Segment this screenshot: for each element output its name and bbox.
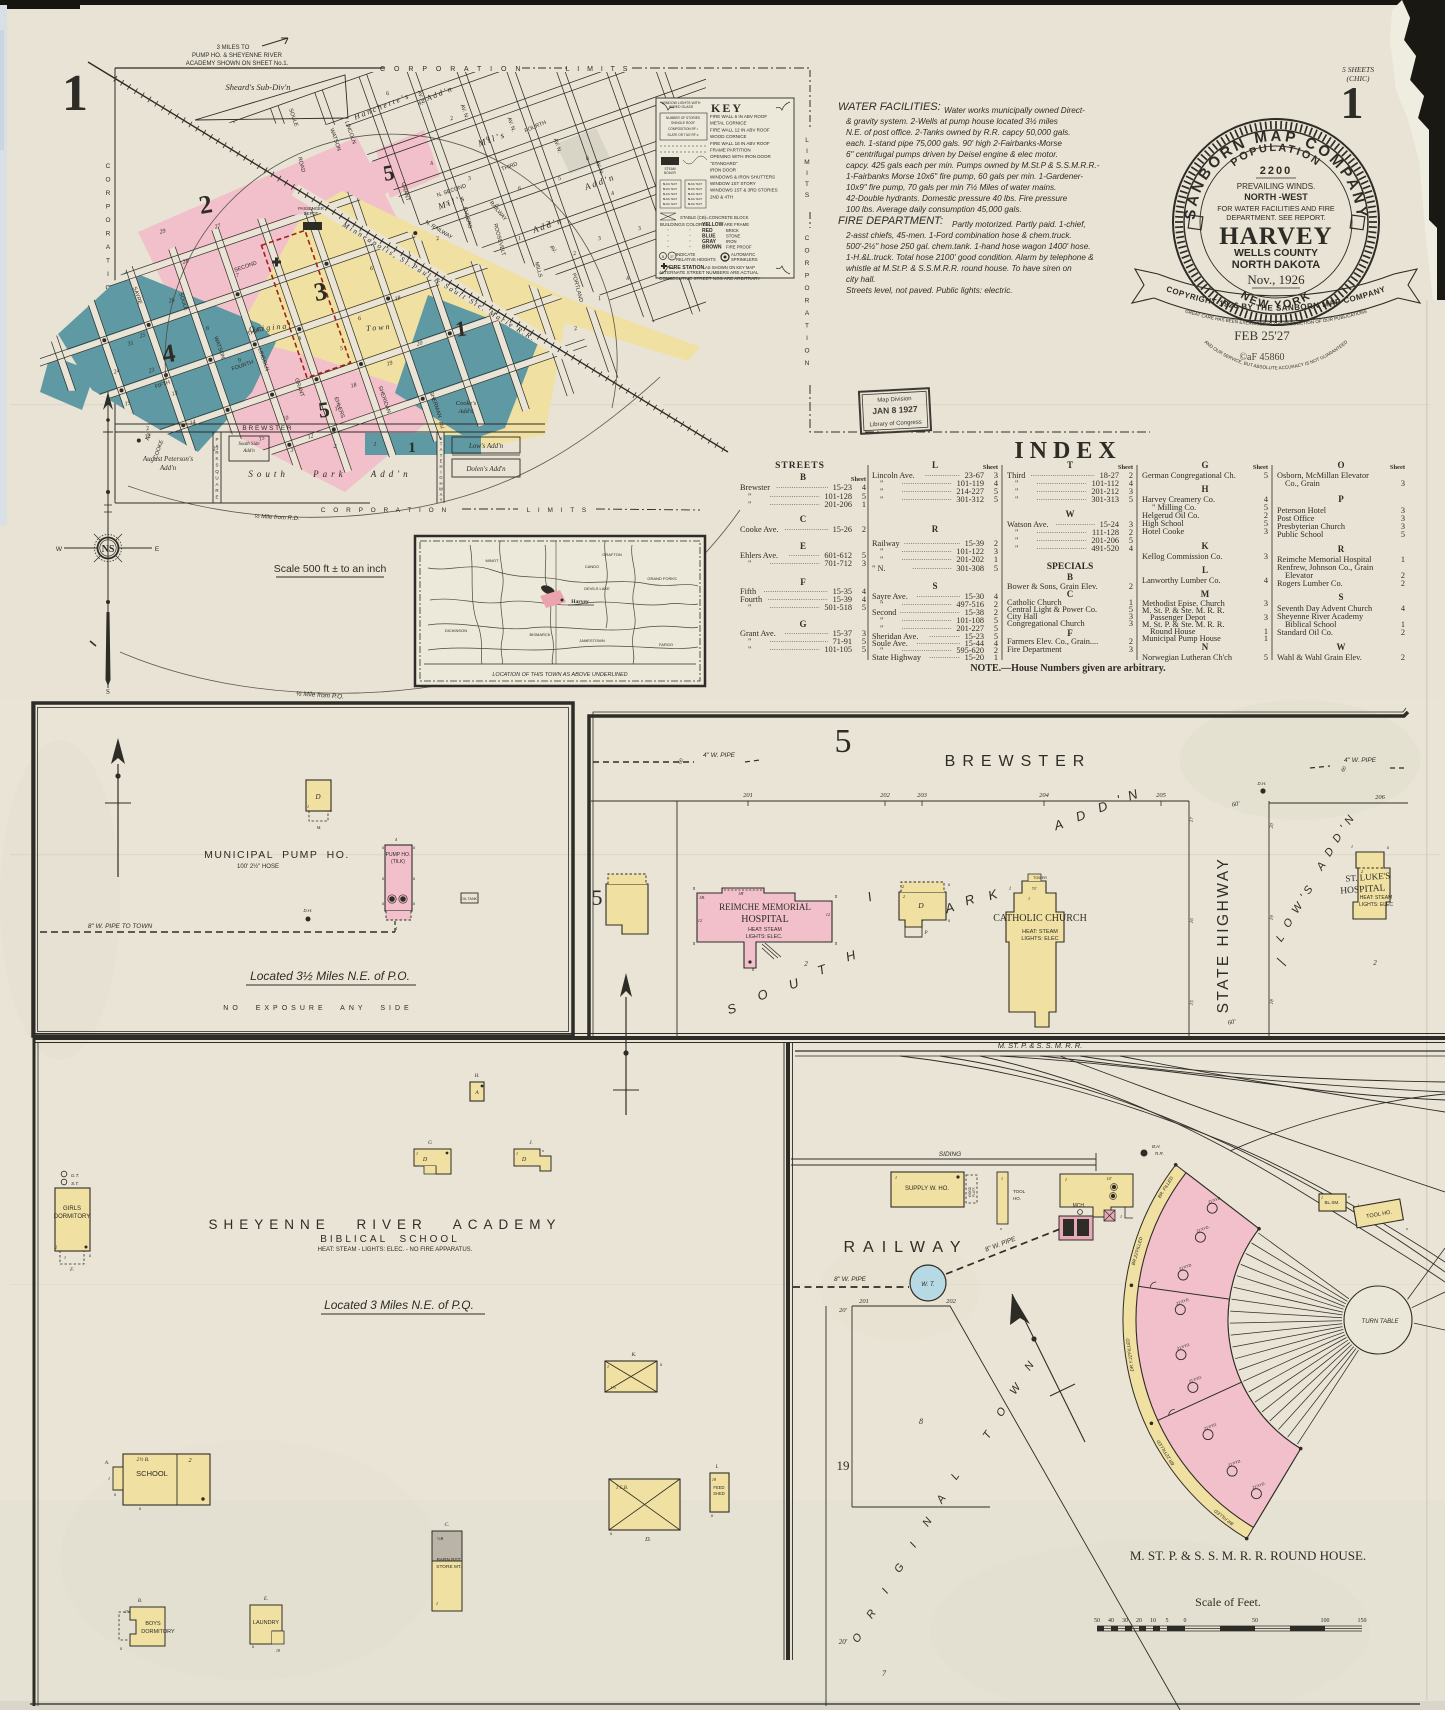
svg-text:C.: C. — [444, 1522, 449, 1528]
svg-text:4" W. PIPE: 4" W. PIPE — [703, 752, 736, 759]
svg-text:METAL CORNICE: METAL CORNICE — [710, 121, 747, 126]
svg-text:1 C.B.: 1 C.B. — [616, 1486, 628, 1491]
svg-text:©aF 45860: ©aF 45860 — [1239, 352, 1284, 363]
svg-text:T: T — [440, 453, 443, 458]
svg-text:N.E. of post office. 2-Tanks o: N.E. of post office. 2-Tanks owned by R.… — [846, 128, 1071, 137]
svg-text:LIGHTS: ELEC: LIGHTS: ELEC — [1021, 936, 1058, 942]
svg-text:STORE MT.: STORE MT. — [436, 1564, 462, 1570]
svg-text:BLDG TEXT: BLDG TEXT — [688, 197, 703, 201]
svg-text:T: T — [440, 442, 443, 447]
svg-text:F: F — [800, 577, 806, 587]
svg-text:E: E — [155, 546, 160, 553]
svg-text:1: 1 — [994, 555, 998, 564]
svg-text:Partly motorized. Partly paid.: Partly motorized. Partly paid. 1-chief, — [952, 220, 1086, 229]
svg-text:Cooke's: Cooke's — [456, 400, 477, 407]
svg-text:1: 1 — [1357, 1203, 1359, 1208]
svg-text:5: 5 — [592, 885, 603, 910]
svg-text:1: 1 — [1321, 1195, 1323, 1200]
svg-text:WOOD CORNICE: WOOD CORNICE — [710, 134, 747, 139]
svg-text:": " — [1015, 495, 1018, 504]
svg-text:Soule Ave.: Soule Ave. — [872, 639, 908, 648]
svg-text:I: I — [806, 148, 808, 155]
svg-text:C: C — [1067, 589, 1074, 599]
svg-text:E: E — [440, 458, 443, 463]
svg-text:201-206: 201-206 — [824, 500, 852, 509]
svg-text:DICKINSON: DICKINSON — [445, 628, 467, 633]
svg-text:501-518: 501-518 — [824, 603, 852, 612]
svg-text:Norwegian Lutheran Ch'ch: Norwegian Lutheran Ch'ch — [1142, 653, 1233, 662]
svg-text:G: G — [439, 475, 442, 480]
svg-text:206: 206 — [1375, 794, 1386, 801]
svg-text:100' 2½" HOSE: 100' 2½" HOSE — [237, 863, 279, 870]
svg-text:Second: Second — [872, 608, 897, 617]
svg-text:PUMP HO. & SHEYENNE RIVER: PUMP HO. & SHEYENNE RIVER — [192, 53, 283, 59]
svg-text:FOR WATER FACILITIES AND FIRE: FOR WATER FACILITIES AND FIRE — [1217, 204, 1335, 213]
svg-text:Hotel Cooke: Hotel Cooke — [1142, 527, 1184, 536]
svg-text:S.T.: S.T. — [71, 1181, 79, 1186]
svg-text:L: L — [932, 460, 938, 470]
svg-text:1: 1 — [1341, 77, 1364, 128]
svg-text:SCHOOL: SCHOOL — [136, 1469, 168, 1478]
svg-text:DORMITORY: DORMITORY — [141, 1629, 175, 1635]
svg-text:1: 1 — [1401, 555, 1405, 564]
svg-text:Bower & Sons, Grain Elev.: Bower & Sons, Grain Elev. — [1007, 582, 1098, 591]
svg-text:x: x — [1406, 1226, 1408, 1231]
svg-text:x: x — [330, 808, 332, 813]
svg-text:BREWSTER: BREWSTER — [945, 753, 1092, 770]
svg-text:P: P — [106, 204, 110, 211]
svg-text:Add'n: Add'n — [159, 464, 177, 472]
svg-text:201: 201 — [859, 1298, 869, 1305]
svg-text:E: E — [215, 495, 218, 500]
svg-text:(TILK): (TILK) — [391, 859, 405, 865]
svg-text:2200: 2200 — [1260, 165, 1292, 177]
svg-text:HOSPITAL: HOSPITAL — [741, 914, 789, 925]
svg-text:500'-2½" hose 250 gal. chem.ta: 500'-2½" hose 250 gal. chem.tank. 1-hand… — [846, 242, 1091, 251]
svg-text:Dolen's Add'n: Dolen's Add'n — [465, 465, 506, 473]
svg-text:GRAND FORKS: GRAND FORKS — [647, 576, 677, 581]
svg-text:L: L — [805, 137, 809, 144]
svg-text:1: 1 — [374, 442, 377, 448]
svg-text:0: 0 — [1184, 1618, 1187, 1624]
svg-text:Watson Ave.: Watson Ave. — [1007, 520, 1049, 529]
svg-text:Wahl & Wahl Grain Elev.: Wahl & Wahl Grain Elev. — [1277, 653, 1362, 662]
svg-text:WINDOW 1ST STORY: WINDOW 1ST STORY — [710, 181, 756, 186]
svg-text:O: O — [804, 348, 809, 355]
svg-text:2-asst chiefs, 45-men. 1-Ford: 2-asst chiefs, 45-men. 1-Ford combinatio… — [845, 231, 1072, 240]
svg-text:Add'n: Add'n — [242, 449, 255, 454]
svg-text:Ehlers Ave.: Ehlers Ave. — [740, 551, 778, 560]
svg-text:1: 1 — [1001, 1176, 1003, 1181]
svg-text:2: 2 — [1401, 653, 1405, 662]
svg-text:5: 5 — [994, 495, 998, 504]
svg-text:2½ B.: 2½ B. — [137, 1456, 150, 1463]
svg-text:1: 1 — [607, 1364, 609, 1369]
svg-text:city hall.: city hall. — [846, 275, 876, 284]
svg-text:1: 1 — [862, 500, 866, 509]
svg-text:S: S — [106, 688, 110, 696]
svg-text:NS: NS — [102, 544, 115, 555]
svg-text:JAMESTOWN: JAMESTOWN — [579, 638, 605, 643]
svg-text:"STANDARD": "STANDARD" — [710, 161, 738, 166]
svg-text:1B': 1B' — [738, 891, 745, 896]
svg-text:1: 1 — [307, 804, 309, 809]
svg-text:8" W. PIPE TO TOWN: 8" W. PIPE TO TOWN — [88, 923, 153, 930]
svg-text:201-202: 201-202 — [956, 555, 984, 564]
svg-text:R: R — [805, 260, 810, 267]
svg-text:H.: H. — [474, 1074, 480, 1079]
svg-text:50: 50 — [1094, 1618, 1100, 1624]
svg-text:NUMBER OF STORIES: NUMBER OF STORIES — [666, 116, 700, 120]
svg-text:SHED: SHED — [713, 1491, 725, 1496]
svg-text:IRON: IRON — [726, 239, 736, 244]
svg-text:MINOT: MINOT — [486, 558, 499, 563]
svg-text:R: R — [106, 190, 111, 197]
svg-text:A: A — [215, 443, 218, 448]
svg-text:BLDG TEXT: BLDG TEXT — [663, 202, 678, 206]
svg-text:O: O — [804, 285, 809, 292]
svg-text:E.: E. — [263, 1597, 268, 1602]
svg-text:W. T.: W. T. — [921, 1282, 935, 1288]
svg-text:F.: F. — [69, 1268, 74, 1273]
svg-text:ALTERNATE STREET NUMBERS ARE A: ALTERNATE STREET NUMBERS ARE ACTUAL — [659, 270, 759, 275]
svg-text:E: E — [800, 541, 806, 551]
svg-text:x: x — [1348, 1194, 1350, 1199]
svg-text:M.: M. — [316, 825, 322, 830]
svg-text:2ND & 4TH: 2ND & 4TH — [710, 194, 733, 199]
svg-text:LOCATION OF THIS TOWN AS ABOVE: LOCATION OF THIS TOWN AS ABOVE UNDERLINE… — [492, 672, 627, 678]
svg-text:PLATF.: PLATF. — [972, 1187, 976, 1197]
svg-text:15-26: 15-26 — [833, 525, 852, 534]
svg-text:I: I — [806, 335, 808, 342]
svg-text:HEAT: STEAM - LIGHTS: ELEC. -: HEAT: STEAM - LIGHTS: ELEC. - NO FIRE AP… — [318, 1247, 473, 1253]
svg-text:2: 2 — [862, 525, 866, 534]
svg-text:R.R.: R.R. — [1155, 1151, 1164, 1156]
svg-text:1: 1 — [1009, 887, 1012, 892]
svg-text:NO EXPOSURE ANY SIDE: NO EXPOSURE ANY SIDE — [223, 1005, 412, 1012]
svg-text:J.: J. — [529, 1141, 532, 1146]
svg-text:H: H — [439, 464, 442, 469]
svg-text:Sheard's Sub-Div'n: Sheard's Sub-Div'n — [226, 82, 291, 92]
svg-text:5: 5 — [994, 564, 998, 573]
svg-text:P: P — [805, 273, 809, 280]
svg-text:O: O — [105, 177, 110, 184]
svg-text:K.: K. — [630, 1352, 636, 1358]
svg-text:3: 3 — [862, 559, 866, 568]
svg-text:": " — [748, 603, 751, 612]
svg-text:20': 20' — [839, 1638, 848, 1646]
svg-text:202: 202 — [880, 792, 891, 799]
svg-text:491-520: 491-520 — [1091, 544, 1119, 553]
svg-text:C: C — [805, 235, 810, 242]
svg-text:" N.: " N. — [872, 564, 886, 573]
svg-text:BIBLICAL SCHOOL: BIBLICAL SCHOOL — [320, 1234, 460, 1245]
svg-text:D: D — [314, 793, 320, 801]
svg-text:M. ST. P. & S. S. M. R. R. R: M. ST. P. & S. S. M. R. R. ROUND HOUSE. — [1130, 1548, 1366, 1563]
svg-text:2: 2 — [1373, 959, 1377, 967]
svg-text:3: 3 — [1129, 645, 1133, 654]
svg-text:BLDG TEXT: BLDG TEXT — [663, 192, 678, 196]
svg-text:T: T — [805, 323, 809, 330]
svg-text:15-23: 15-23 — [833, 483, 852, 492]
svg-text:20': 20' — [839, 1307, 848, 1314]
svg-text:": " — [880, 495, 883, 504]
svg-text:5 SHEETS: 5 SHEETS — [1342, 65, 1374, 74]
svg-text:x: x — [542, 1148, 544, 1153]
svg-text:1: 1 — [108, 1476, 110, 1481]
svg-text:HEAT: STEAM: HEAT: STEAM — [748, 927, 782, 933]
svg-text:BLDG TEXT: BLDG TEXT — [663, 187, 678, 191]
svg-text:204: 204 — [1039, 792, 1050, 799]
svg-text:205: 205 — [1156, 792, 1167, 799]
svg-text:A: A — [215, 482, 218, 487]
svg-text:BLDG TEXT: BLDG TEXT — [688, 202, 703, 206]
svg-text:Public School: Public School — [1277, 530, 1324, 539]
svg-text:CONSECUTIVE STREET NOS ARE ARB: CONSECUTIVE STREET NOS ARE ARBITRARY — [659, 276, 760, 281]
svg-text:G: G — [1201, 460, 1208, 470]
svg-text:FARGO: FARGO — [659, 642, 673, 647]
svg-text:FEB 25'27: FEB 25'27 — [1234, 328, 1290, 343]
svg-text:D.: D. — [644, 1537, 651, 1543]
svg-text:B.: B. — [138, 1599, 142, 1604]
svg-text:HO.: HO. — [1013, 1196, 1021, 1201]
svg-text:H: H — [439, 481, 442, 486]
svg-text:": " — [880, 555, 883, 564]
svg-text:Streets level, not paved. Publ: Streets level, not paved. Public lights:… — [846, 286, 1013, 295]
svg-text:5: 5 — [1166, 1618, 1169, 1624]
svg-text:P: P — [215, 437, 218, 442]
svg-text:": " — [748, 559, 751, 568]
svg-text:3: 3 — [1264, 613, 1268, 622]
svg-text:BLDG TEXT: BLDG TEXT — [688, 182, 703, 186]
svg-text:Kellog Commission Co.: Kellog Commission Co. — [1142, 552, 1222, 561]
svg-text:LIGHTS: ELEC.: LIGHTS: ELEC. — [746, 934, 783, 940]
svg-text:Cooke Ave.: Cooke Ave. — [740, 525, 779, 534]
svg-text:R: R — [932, 524, 939, 534]
svg-text:Sheet: Sheet — [1253, 464, 1269, 471]
svg-text:Rogers Lumber Co.: Rogers Lumber Co. — [1277, 579, 1343, 588]
svg-text:Sheet: Sheet — [851, 476, 867, 483]
svg-text:B: B — [1067, 572, 1073, 582]
svg-text:T: T — [805, 181, 809, 188]
svg-text:Add'n: Add'n — [457, 408, 473, 415]
svg-text:CATHOLIC CHURCH: CATHOLIC CHURCH — [993, 913, 1087, 924]
svg-text:G: G — [799, 619, 806, 629]
svg-text:DEPARTMENT. SEE REPORT.: DEPARTMENT. SEE REPORT. — [1226, 213, 1325, 222]
svg-text:Sayre Ave.: Sayre Ave. — [872, 592, 908, 601]
svg-text:HEAT: STEAM: HEAT: STEAM — [1022, 929, 1058, 935]
svg-text:101-105: 101-105 — [824, 645, 852, 654]
svg-text:5: 5 — [1264, 471, 1268, 480]
svg-text:CANDO: CANDO — [585, 564, 599, 569]
svg-text:PUMP HO.: PUMP HO. — [386, 852, 411, 858]
svg-text:STATE HIGHWAY: STATE HIGHWAY — [1215, 857, 1232, 1014]
svg-text:SIDING: SIDING — [939, 1151, 961, 1158]
svg-text:BLDG TEXT: BLDG TEXT — [663, 182, 678, 186]
svg-text:D: D — [422, 1157, 428, 1163]
svg-text:1: 1 — [436, 1601, 438, 1606]
svg-text:1-Fairbanks Morse 10x6" fire p: 1-Fairbanks Morse 10x6" fire pump, 60 ga… — [846, 172, 1083, 181]
svg-text:MCH.: MCH. — [1073, 1203, 1086, 1209]
svg-text:ARE FRAME: ARE FRAME — [724, 222, 749, 227]
svg-text:BOYS: BOYS — [145, 1621, 161, 1627]
svg-text:1: 1 — [994, 653, 998, 662]
svg-text:Fourth: Fourth — [740, 595, 763, 604]
svg-text:SUPPLY W. HO.: SUPPLY W. HO. — [905, 1186, 949, 1192]
svg-text:D: D — [521, 1157, 527, 1163]
svg-text:D.H.: D.H. — [1258, 781, 1267, 786]
svg-text:15-20: 15-20 — [965, 653, 984, 662]
svg-text:WATER FACILITIES:: WATER FACILITIES: — [838, 101, 941, 113]
svg-text:3: 3 — [1401, 479, 1405, 488]
svg-text:GIRLS: GIRLS — [63, 1206, 81, 1212]
svg-text:5: 5 — [1401, 530, 1405, 539]
svg-text:3: 3 — [290, 448, 294, 454]
svg-text:I: I — [107, 271, 109, 278]
svg-text:150: 150 — [1358, 1618, 1367, 1624]
svg-text:5: 5 — [862, 645, 866, 654]
svg-text:K: K — [1201, 541, 1208, 551]
svg-text:FIRE WALL 12 IN ABV ROOF: FIRE WALL 12 IN ABV ROOF — [710, 127, 770, 132]
svg-text:S: S — [932, 581, 937, 591]
svg-text:202: 202 — [946, 1298, 957, 1305]
svg-text:& gravity system. 2-Wells at p: & gravity system. 2-Wells at pump house … — [846, 117, 1058, 126]
svg-text:REIMCHE MEMORIAL: REIMCHE MEMORIAL — [719, 902, 811, 912]
svg-text:2: 2 — [1401, 579, 1405, 588]
svg-text:DEVILS LAKE: DEVILS LAKE — [584, 586, 610, 591]
svg-text:DORMITORY: DORMITORY — [54, 1214, 90, 1220]
svg-text:R: R — [106, 231, 111, 238]
svg-text:L: L — [715, 1465, 719, 1470]
svg-text:2: 2 — [1401, 628, 1405, 637]
svg-text:B R E W S T E R: B R E W S T E R — [242, 425, 292, 432]
svg-text:SPECIALS: SPECIALS — [1047, 562, 1093, 572]
svg-text:Y: Y — [440, 498, 443, 503]
svg-text:O: O — [804, 248, 809, 255]
svg-text:Grant Ave.: Grant Ave. — [740, 629, 776, 638]
svg-text:NORTH DAKOTA: NORTH DAKOTA — [1232, 259, 1320, 271]
svg-text:W: W — [1337, 642, 1346, 652]
svg-text:BROWN: BROWN — [702, 245, 722, 251]
svg-text:STABLE (CB)=CONCRETE BLOCK: STABLE (CB)=CONCRETE BLOCK — [680, 215, 749, 220]
svg-text:WIRED GLASS: WIRED GLASS — [669, 105, 694, 109]
svg-text:Congregational Church: Congregational Church — [1007, 619, 1086, 628]
svg-text:South Side: South Side — [238, 442, 260, 447]
svg-text:OPENING WITH IRON DOOR: OPENING WITH IRON DOOR — [710, 154, 772, 159]
svg-text:A.: A. — [104, 1461, 109, 1466]
svg-text:1: 1 — [408, 440, 416, 456]
svg-text:1: 1 — [64, 1255, 66, 1260]
svg-text:": " — [1015, 544, 1018, 553]
svg-text:50: 50 — [1252, 1618, 1258, 1624]
svg-text:Railway: Railway — [872, 539, 901, 548]
svg-text:Brewster: Brewster — [740, 483, 770, 492]
svg-text:A: A — [440, 492, 443, 497]
svg-text:U: U — [215, 475, 218, 480]
svg-text:301-308: 301-308 — [956, 564, 984, 573]
svg-text:SHINGLE ROOF: SHINGLE ROOF — [671, 121, 695, 125]
svg-text:FIRE DEPARTMENT:: FIRE DEPARTMENT: — [838, 215, 943, 227]
svg-text:W: W — [56, 546, 63, 553]
svg-text:BARN BST.: BARN BST. — [437, 1557, 462, 1563]
svg-text:PREVAILING WINDS.: PREVAILING WINDS. — [1237, 182, 1316, 191]
svg-text:301-312: 301-312 — [956, 495, 984, 504]
svg-text:BRICK: BRICK — [726, 228, 739, 233]
svg-text:": " — [748, 645, 751, 654]
svg-text:Sheet: Sheet — [1118, 464, 1134, 471]
svg-text:W: W — [1066, 509, 1075, 519]
svg-text:Scale of Feet.: Scale of Feet. — [1195, 1595, 1261, 1609]
svg-text:2: 2 — [1129, 582, 1133, 591]
svg-text:Sheet: Sheet — [983, 464, 999, 471]
svg-text:ACADEMY SHOWN ON SHEET No.1.: ACADEMY SHOWN ON SHEET No.1. — [186, 61, 289, 67]
svg-text:Lanworthy Lumber Co.: Lanworthy Lumber Co. — [1142, 576, 1221, 585]
svg-text:WINDOWS 1ST & 3RD STORIES: WINDOWS 1ST & 3RD STORIES — [710, 188, 778, 193]
svg-text:3: 3 — [1129, 619, 1133, 628]
svg-text:M: M — [1201, 589, 1210, 599]
svg-text:10: 10 — [1150, 1618, 1156, 1624]
svg-text:I: I — [806, 170, 808, 177]
svg-text:BOILER: BOILER — [664, 171, 676, 175]
svg-text:LAUNDRY: LAUNDRY — [253, 1620, 280, 1626]
svg-text:70': 70' — [1032, 886, 1037, 891]
svg-text:Low's Add'n: Low's Add'n — [468, 442, 504, 450]
svg-text:K: K — [215, 456, 218, 461]
svg-text:SPRINKLERS: SPRINKLERS — [731, 257, 758, 262]
svg-text:G.T.: G.T. — [71, 1173, 80, 1178]
svg-text:1: 1 — [1065, 1177, 1067, 1182]
svg-text:P: P — [1338, 494, 1344, 504]
svg-text:C O R P O R A T I O N: C O R P O R A T I O N — [380, 66, 524, 73]
svg-text:BISMARCK: BISMARCK — [530, 632, 551, 637]
svg-text:H: H — [1201, 484, 1208, 494]
svg-text:L: L — [1202, 565, 1208, 575]
svg-text:5: 5 — [1264, 653, 1268, 662]
svg-text:Located 3½ Miles N.E. of P.O.: Located 3½ Miles N.E. of P.O. — [250, 969, 410, 983]
svg-text:301-313: 301-313 — [1091, 495, 1119, 504]
svg-text:August Peterson's: August Peterson's — [142, 455, 194, 463]
svg-text:GRAFTON: GRAFTON — [602, 552, 622, 557]
svg-text:O: O — [1337, 460, 1344, 470]
svg-text:S: S — [805, 192, 810, 199]
svg-text:BL.SM.: BL.SM. — [1324, 1200, 1339, 1205]
svg-text:100: 100 — [1321, 1618, 1330, 1624]
svg-text:": " — [748, 500, 751, 509]
svg-text:NOTE.—House Numbers given are: NOTE.—House Numbers given are arbitrary. — [970, 663, 1166, 674]
svg-text:KEY: KEY — [711, 101, 743, 115]
svg-text:Fire Department: Fire Department — [1007, 645, 1062, 654]
svg-text:WELLS COUNTY: WELLS COUNTY — [1234, 247, 1318, 259]
svg-text:5: 5 — [862, 603, 866, 612]
svg-text:6" centrifugal pumps driven by: 6" centrifugal pumps driven by Deisel en… — [846, 150, 1058, 159]
svg-text:SLATE OR TILE RF o: SLATE OR TILE RF o — [668, 133, 699, 137]
svg-text:HARVEY: HARVEY — [1219, 223, 1332, 250]
svg-text:8" W. PIPE: 8" W. PIPE — [834, 1276, 867, 1283]
svg-text:FIRE WALL 6 IN ABV ROOF: FIRE WALL 6 IN ABV ROOF — [710, 114, 767, 119]
svg-text:LIGHTS: ELEC: LIGHTS: ELEC — [1359, 902, 1393, 908]
svg-text:1: 1 — [1264, 634, 1268, 643]
svg-text:BLDG TEXT: BLDG TEXT — [663, 197, 678, 201]
svg-text:Municipal Pump House: Municipal Pump House — [1142, 634, 1221, 643]
svg-text:30: 30 — [1122, 1618, 1128, 1624]
svg-text:10x9" fire pump, 70 gals per m: 10x9" fire pump, 70 gals per min 7½ Mile… — [846, 183, 1056, 192]
svg-text:FEED: FEED — [713, 1485, 724, 1490]
svg-text:x: x — [1000, 1226, 1002, 1231]
svg-text:N: N — [805, 360, 810, 367]
svg-text:M: M — [804, 159, 809, 166]
svg-text:BLDG TEXT: BLDG TEXT — [688, 192, 703, 196]
svg-text:S: S — [1338, 592, 1343, 602]
